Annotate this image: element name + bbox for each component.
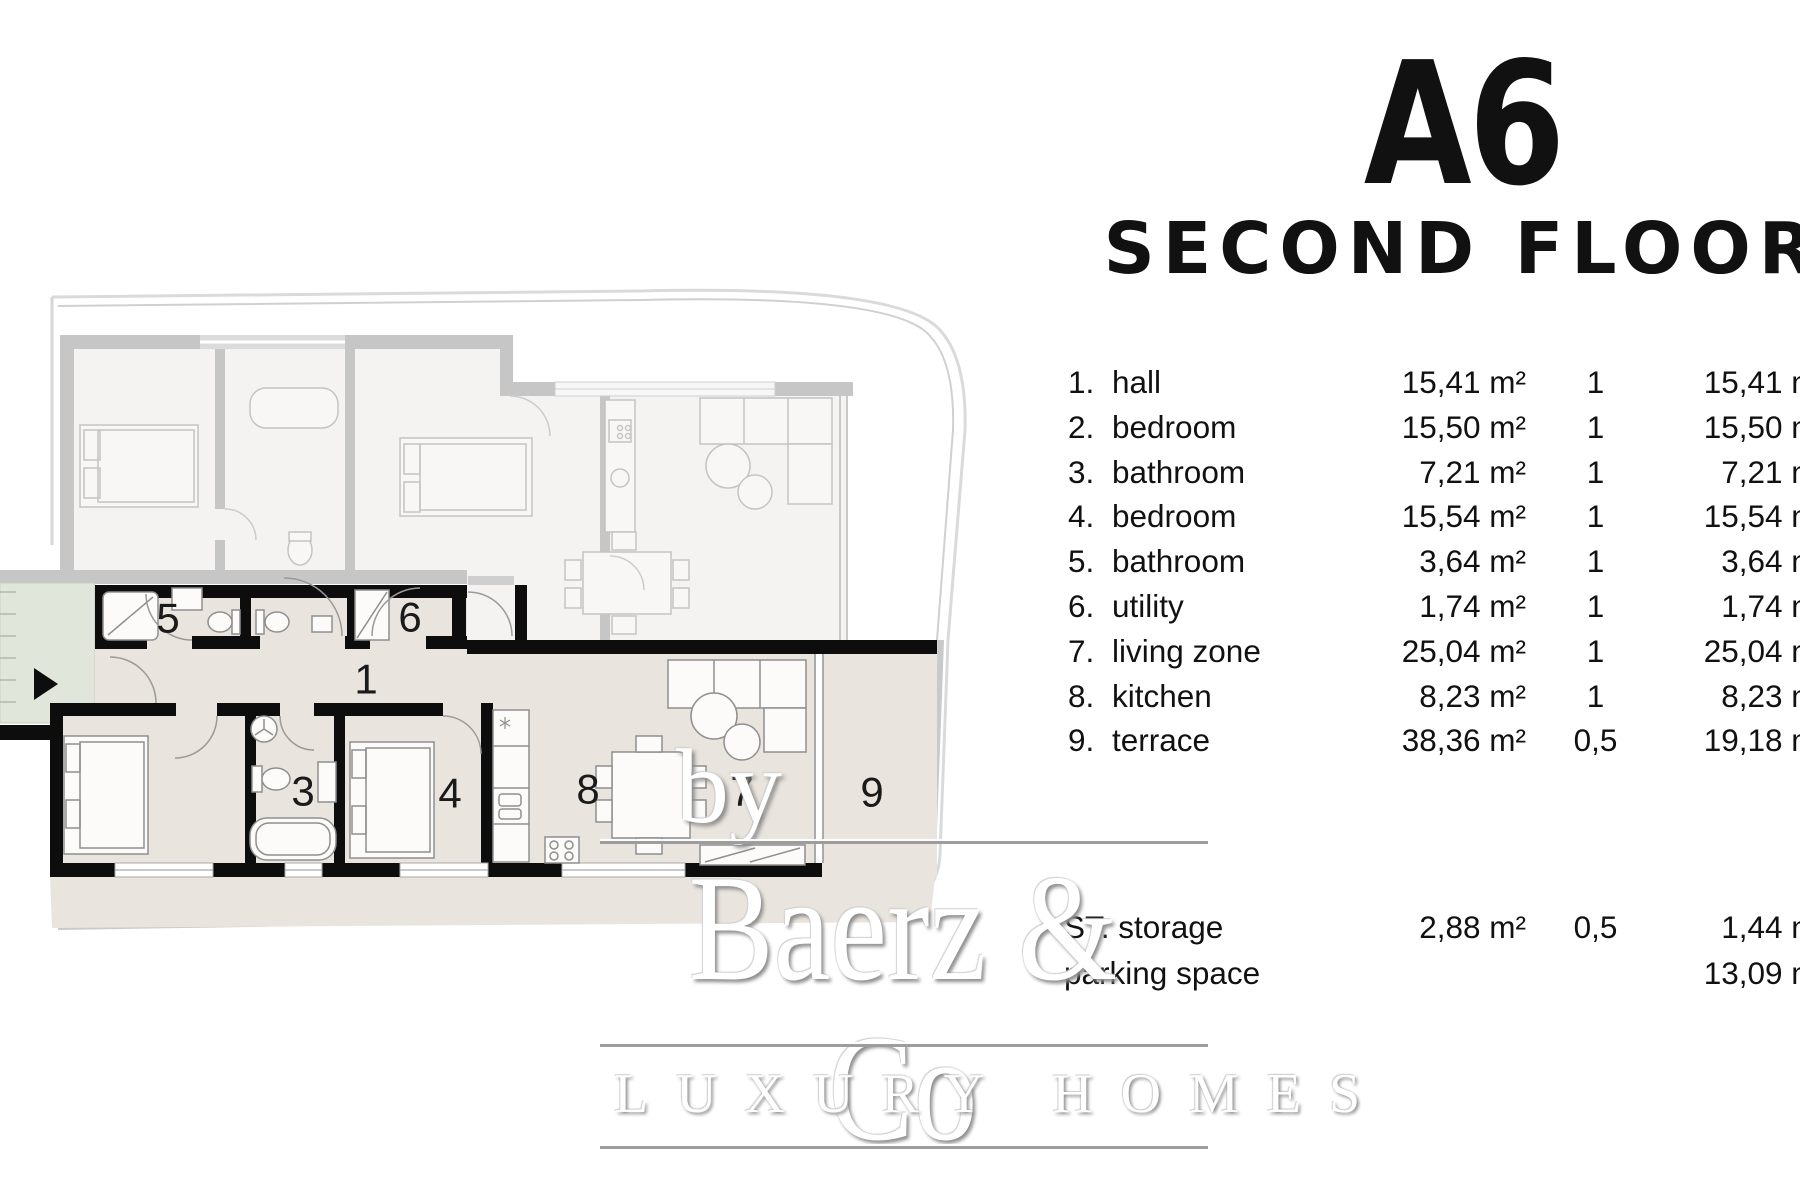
room-row-factor: 1 bbox=[1528, 584, 1663, 629]
room-row-factor: 1 bbox=[1528, 450, 1663, 495]
room-row-number: 9. bbox=[1060, 718, 1108, 763]
room-row-name: hall bbox=[1108, 360, 1333, 405]
room-row-name: bedroom bbox=[1108, 494, 1333, 539]
room-number-label: 9 bbox=[860, 769, 883, 816]
room-row-area: 38,36 m² bbox=[1333, 718, 1528, 763]
room-row-total: 25,04 m² bbox=[1663, 629, 1800, 674]
floorplan-page: 13456789 A6 SECOND FLOOR 1.hall15,41 m²1… bbox=[0, 0, 1800, 1200]
room-row-name: kitchen bbox=[1108, 674, 1333, 719]
room-row-name: living zone bbox=[1108, 629, 1333, 674]
windows bbox=[115, 863, 685, 877]
watermark-rule-middle bbox=[600, 1044, 1208, 1047]
unit-name: A6 bbox=[1363, 40, 1561, 210]
room-row-name: terrace bbox=[1108, 718, 1333, 763]
room-row-number: 8. bbox=[1060, 674, 1108, 719]
room-row-factor: 1 bbox=[1528, 405, 1663, 450]
room-row-total: 1,74 m² bbox=[1663, 584, 1800, 629]
room-row-area: 15,50 m² bbox=[1333, 405, 1528, 450]
room-row-area: 3,64 m² bbox=[1333, 539, 1528, 584]
room-row-name: bathroom bbox=[1108, 450, 1333, 495]
extra-row-total: 13,09 m² bbox=[1663, 950, 1800, 996]
room-row-total: 7,21 m² bbox=[1663, 450, 1800, 495]
room-number-label: 1 bbox=[354, 656, 377, 703]
room-number-label: 6 bbox=[398, 594, 421, 641]
entry-zone bbox=[0, 583, 95, 723]
room-row-number: 3. bbox=[1060, 450, 1108, 495]
room-row-area: 25,04 m² bbox=[1333, 629, 1528, 674]
room-number-label: 5 bbox=[156, 595, 179, 642]
room-row-number: 4. bbox=[1060, 494, 1108, 539]
extra-row-factor: 0,5 bbox=[1528, 904, 1663, 950]
room-row-number: 5. bbox=[1060, 539, 1108, 584]
watermark-tagline: LUXURY HOMES bbox=[600, 1062, 1208, 1126]
room-row-factor: 1 bbox=[1528, 360, 1663, 405]
terrace-glass-wall bbox=[814, 654, 824, 863]
room-table: 1.hall15,41 m²115,41 m²2.bedroom15,50 m²… bbox=[1060, 360, 1800, 763]
room-row-total: 15,54 m² bbox=[1663, 494, 1800, 539]
room-row-total: 3,64 m² bbox=[1663, 539, 1800, 584]
room-row-area: 15,54 m² bbox=[1333, 494, 1528, 539]
room-row-total: 15,50 m² bbox=[1663, 405, 1800, 450]
extra-row-area bbox=[1333, 950, 1528, 996]
room-row-number: 7. bbox=[1060, 629, 1108, 674]
room-row-name: bathroom bbox=[1108, 539, 1333, 584]
room-number-label: 3 bbox=[291, 768, 314, 815]
room-row-total: 8,23 m² bbox=[1663, 674, 1800, 719]
room-row-factor: 1 bbox=[1528, 539, 1663, 584]
room-row-name: utility bbox=[1108, 584, 1333, 629]
room-row-area: 8,23 m² bbox=[1333, 674, 1528, 719]
room-row-total: 19,18 m² bbox=[1663, 718, 1800, 763]
watermark-by: by bbox=[676, 726, 782, 848]
room-row-factor: 1 bbox=[1528, 674, 1663, 719]
title-block: A6 SECOND FLOOR bbox=[1060, 40, 1800, 286]
extra-row-total: 1,44 m² bbox=[1663, 904, 1800, 950]
room-row-area: 7,21 m² bbox=[1333, 450, 1528, 495]
extra-row-factor bbox=[1528, 950, 1663, 996]
room-row-number: 2. bbox=[1060, 405, 1108, 450]
room-row-area: 1,74 m² bbox=[1333, 584, 1528, 629]
room-row-name: bedroom bbox=[1108, 405, 1333, 450]
room-row-number: 1. bbox=[1060, 360, 1108, 405]
room-number-label: 8 bbox=[576, 766, 599, 813]
watermark-rule-bottom bbox=[600, 1146, 1208, 1149]
room-row-area: 15,41 m² bbox=[1333, 360, 1528, 405]
room-row-factor: 1 bbox=[1528, 494, 1663, 539]
room-row-factor: 0,5 bbox=[1528, 718, 1663, 763]
room-number-label: 4 bbox=[438, 770, 461, 817]
room-row-number: 6. bbox=[1060, 584, 1108, 629]
room-row-factor: 1 bbox=[1528, 629, 1663, 674]
room-row-total: 15,41 m² bbox=[1663, 360, 1800, 405]
extra-row-area: 2,88 m² bbox=[1333, 904, 1528, 950]
